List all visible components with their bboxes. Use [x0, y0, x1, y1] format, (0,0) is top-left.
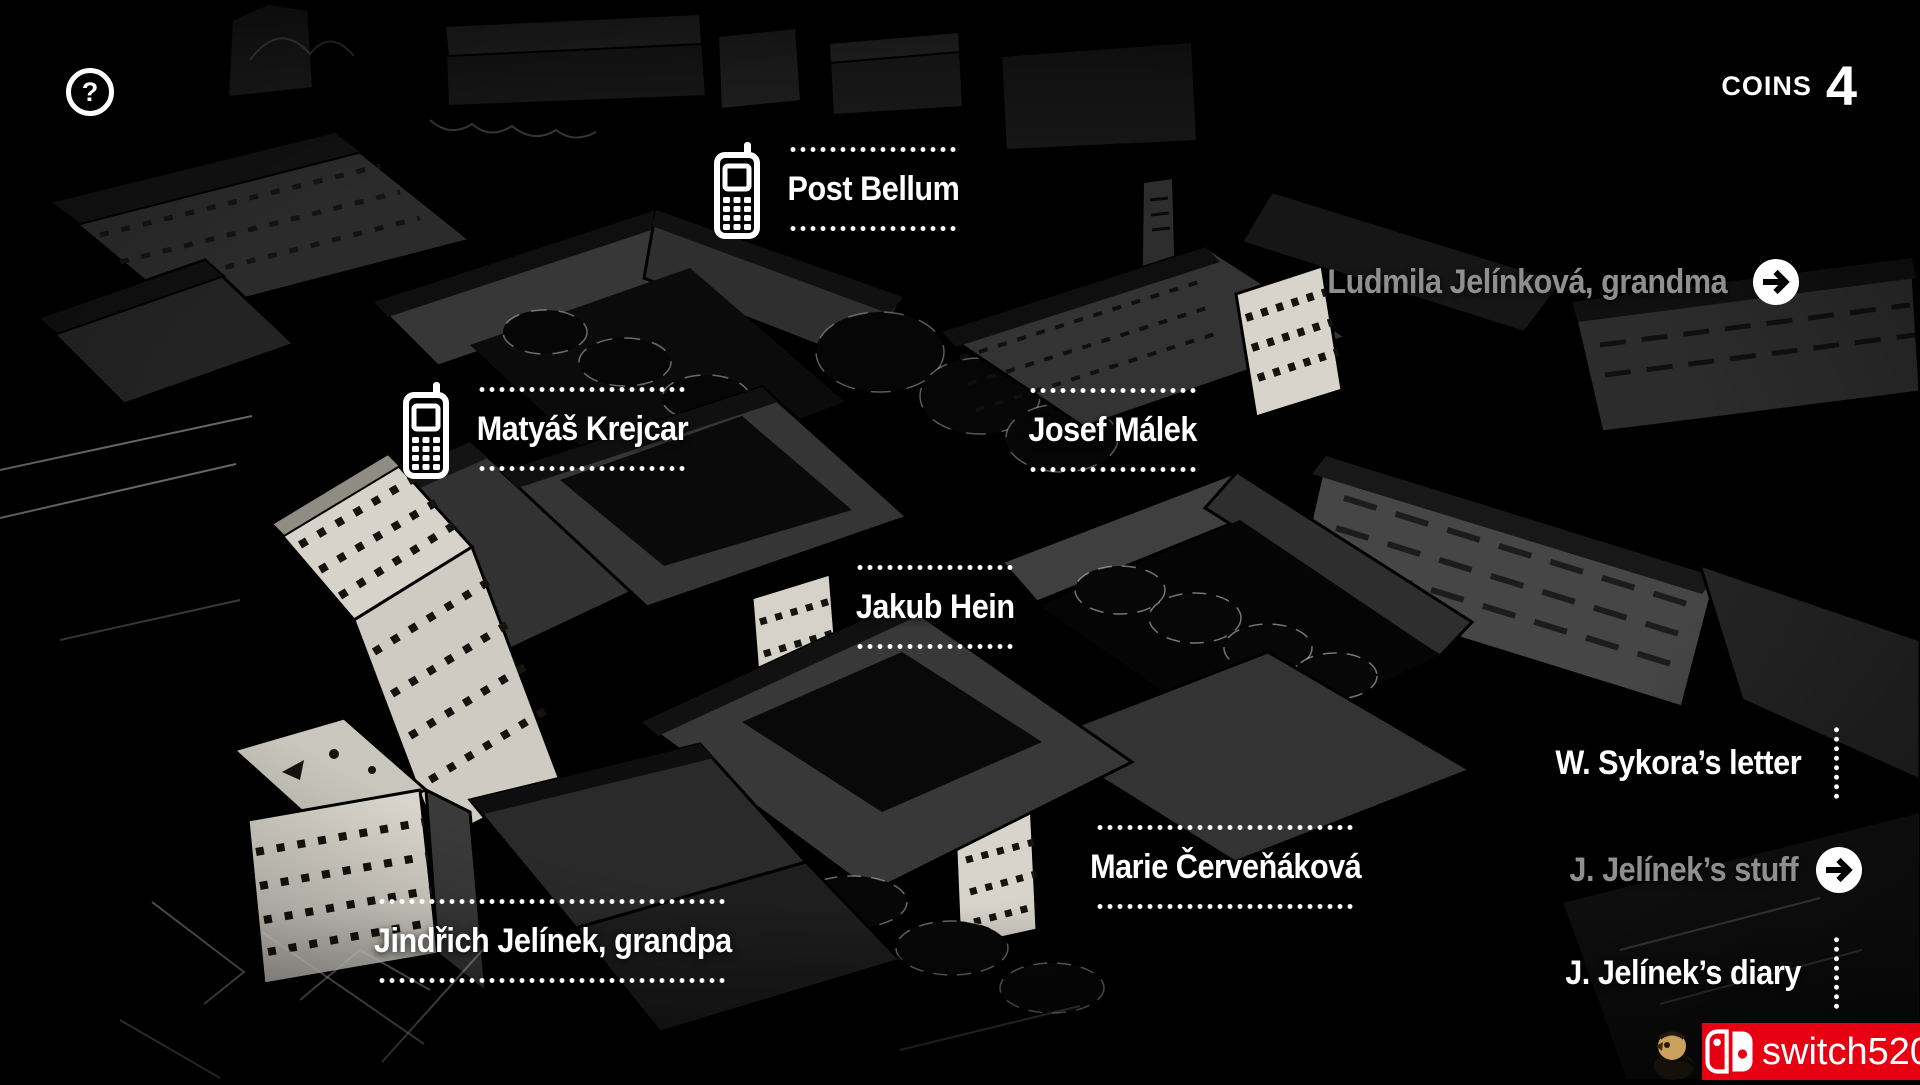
map-label-text: Matyáš Krejcar [477, 408, 688, 450]
map-item-text: J. Jelínek’s diary [1565, 954, 1801, 993]
map-link-jelinek-stuff[interactable]: J. Jelínek’s stuff [1544, 847, 1862, 893]
vertical-dotted-line [1834, 725, 1839, 801]
game-map-screen: ? COINS 4 Post Bellum [0, 0, 1920, 1080]
question-mark-icon: ? [66, 68, 114, 116]
coins-label: COINS [1721, 71, 1812, 102]
owl-mascot-icon [1648, 1026, 1704, 1080]
arrow-right-icon[interactable] [1816, 847, 1862, 893]
map-label-text: Jakub Hein [856, 586, 1015, 628]
dotted-line [855, 644, 1015, 649]
map-link-text: J. Jelínek’s stuff [1569, 851, 1798, 890]
dotted-line [477, 387, 688, 392]
dotted-line [477, 466, 688, 471]
dotted-line [377, 978, 728, 983]
vertical-dotted-line [1834, 935, 1839, 1011]
dotted-line [1095, 825, 1357, 830]
watermark-text: switch520 [1762, 1033, 1920, 1071]
dotted-line [1095, 904, 1357, 909]
dotted-line [1028, 388, 1198, 393]
map-link-text: Ludmila Jelínková, grandma [1327, 263, 1727, 302]
map-label-marie-cervenakova[interactable]: Marie Červeňáková [1095, 825, 1357, 909]
dotted-line [788, 226, 958, 231]
map-label-text: Josef Málek [1029, 409, 1198, 451]
phone-icon [714, 142, 760, 239]
switch520-watermark: switch520 [1648, 1020, 1920, 1080]
help-button[interactable]: ? [66, 68, 114, 116]
nintendo-switch-logo-icon [1705, 1028, 1755, 1075]
dotted-line [855, 565, 1015, 570]
coins-counter: COINS 4 [1721, 58, 1857, 114]
map-link-ludmila-grandma[interactable]: Ludmila Jelínková, grandma [1283, 259, 1799, 305]
map-label-text: Marie Červeňáková [1090, 846, 1361, 888]
map-label-matyas-krejcar[interactable]: Matyáš Krejcar [477, 387, 688, 471]
map-label-jakub-hein[interactable]: Jakub Hein [855, 565, 1015, 649]
dotted-line [788, 147, 958, 152]
dotted-line [377, 899, 728, 904]
arrow-right-icon[interactable] [1753, 259, 1799, 305]
coins-value: 4 [1826, 58, 1857, 114]
map-item-jelinek-diary[interactable]: J. Jelínek’s diary [1539, 935, 1839, 1011]
map-label-text: Post Bellum [787, 168, 959, 210]
dotted-line [1028, 467, 1198, 472]
phone-icon [403, 382, 449, 479]
watermark-banner: switch520 [1702, 1023, 1920, 1080]
map-label-text: Jindřich Jelínek, grandpa [374, 920, 732, 962]
city-map-illustration [0, 0, 1920, 1080]
map-label-josef-malek[interactable]: Josef Málek [1028, 388, 1198, 472]
map-item-sykora-letter[interactable]: W. Sykora’s letter [1528, 725, 1839, 801]
map-label-post-bellum[interactable]: Post Bellum [788, 147, 958, 231]
map-label-jindrich-jelinek[interactable]: Jindřich Jelínek, grandpa [377, 899, 728, 983]
map-item-text: W. Sykora’s letter [1555, 744, 1801, 783]
